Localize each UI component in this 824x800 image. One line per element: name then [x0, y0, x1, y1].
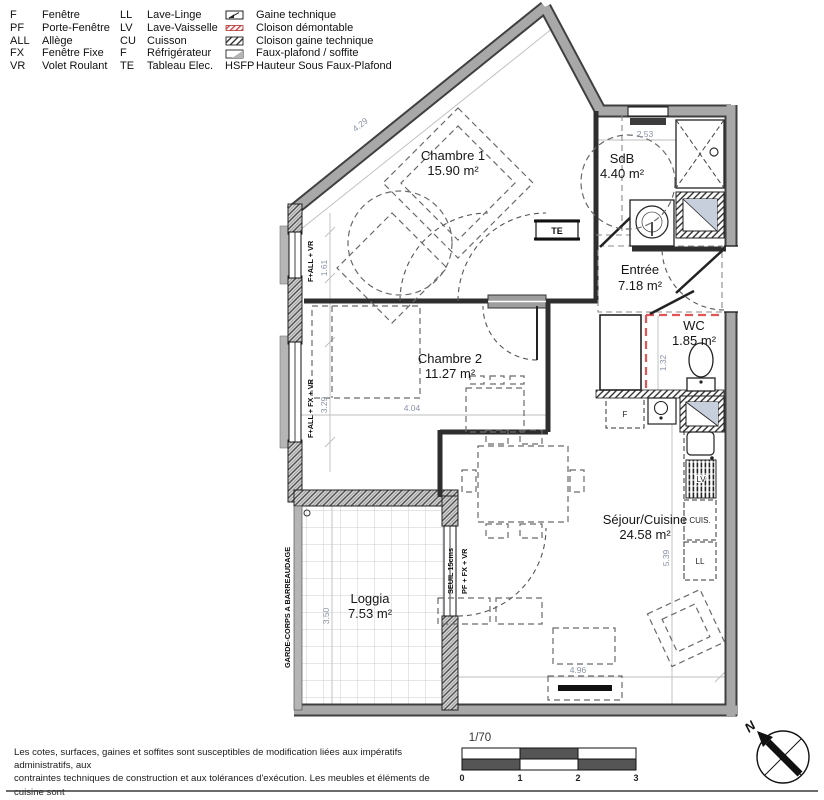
room-name-chambre1: Chambre 1: [421, 148, 485, 163]
f-all-vr-label: F+ALL + VR: [306, 240, 315, 282]
dining-table: [478, 446, 568, 522]
dishwasher: LV: [686, 460, 716, 498]
scale-tick-3: 3: [633, 773, 638, 783]
desk: [466, 388, 524, 432]
volet-roulant-box: [280, 226, 289, 284]
gaine-technique-wc: [680, 396, 724, 432]
lv-label: LV: [696, 475, 706, 484]
tv: [558, 685, 612, 691]
sdb-door-leaf: [600, 214, 634, 247]
seuil-label: SEUIL 15cms: [446, 548, 455, 594]
dim-diagonal: 4.29: [351, 115, 370, 133]
bed-chambre1: [383, 108, 533, 258]
north-arrow: N: [742, 717, 809, 783]
room-name-wc: WC: [683, 318, 705, 333]
shower: [676, 120, 724, 188]
wc-door-leaf: [650, 291, 694, 314]
room-area-wc: 1.85 m²: [672, 333, 717, 348]
dim-wc: 1.32: [658, 354, 668, 371]
room-area-loggia: 7.53 m²: [348, 606, 393, 621]
room-name-chambre2: Chambre 2: [418, 351, 482, 366]
front-door-opening: [724, 246, 738, 312]
room-area-sdb: 4.40 m²: [600, 166, 645, 181]
armchair: [647, 589, 724, 666]
room-name-entree: Entrée: [621, 262, 659, 277]
bed-chambre2: [312, 306, 420, 398]
volet-roulant-box: [280, 336, 289, 448]
window-left-1: [289, 232, 301, 278]
toilet: [687, 343, 715, 391]
scale-ratio: 1/70: [469, 732, 491, 744]
room-name-sejour: Séjour/Cuisine: [603, 512, 688, 527]
kitchen-sink: [687, 432, 714, 460]
scale-bar: 1/70 0 1 2 3: [459, 732, 638, 783]
hand-basin: [648, 398, 676, 424]
fridge-label: F: [623, 410, 628, 419]
ll-label: LL: [696, 557, 705, 566]
front-door-leaf: [676, 249, 724, 293]
dim-window2: 3.29: [319, 396, 329, 413]
gaine-technique-sdb: [676, 192, 724, 238]
window-sdb: [628, 107, 668, 125]
washbasin: [630, 200, 674, 246]
dim-window1: 1.61: [319, 259, 329, 276]
cuis-label: CUIS.: [689, 516, 710, 525]
scale-tick-2: 2: [575, 773, 580, 783]
loggia-top-wall: [294, 490, 458, 506]
scale-tick-0: 0: [459, 773, 464, 783]
floorplan-page: FFenêtre PFPorte-Fenêtre ALLAllège FXFen…: [0, 0, 824, 800]
room-area-chambre1: 15.90 m²: [427, 163, 479, 178]
dim-chambre2: 4.04: [404, 403, 421, 413]
te-label: TE: [551, 226, 563, 236]
footer-graphics: 1/70 0 1 2 3 N: [0, 715, 824, 800]
north-label: N: [742, 717, 759, 735]
dim-sejour-w: 4.96: [570, 665, 587, 675]
loggia-rail: [294, 506, 302, 710]
coffee-table: [553, 628, 615, 664]
dim-loggia: 3.50: [321, 607, 331, 624]
room-area-entree: 7.18 m²: [618, 278, 663, 293]
scale-tick-1: 1: [517, 773, 522, 783]
floor-plan: LV: [0, 0, 824, 724]
window-left-2: [289, 342, 301, 442]
clearance-circle: [348, 191, 452, 295]
pf-fx-vr-label: PF + FX + VR: [460, 548, 469, 594]
garde-corps-label: GARDE-CORPS A BARREAUDAGE: [283, 547, 292, 668]
room-name-loggia: Loggia: [350, 591, 390, 606]
dim-sdb-width: 2.53: [637, 129, 654, 139]
room-name-sdb: SdB: [610, 151, 635, 166]
placard: [600, 315, 641, 390]
room-area-sejour: 24.58 m²: [619, 527, 671, 542]
room-area-chambre2: 11.27 m²: [425, 366, 476, 381]
f-all-fx-vr-label: F+ALL + FX + VR: [306, 378, 315, 438]
dim-sejour-h: 5.39: [661, 549, 671, 566]
